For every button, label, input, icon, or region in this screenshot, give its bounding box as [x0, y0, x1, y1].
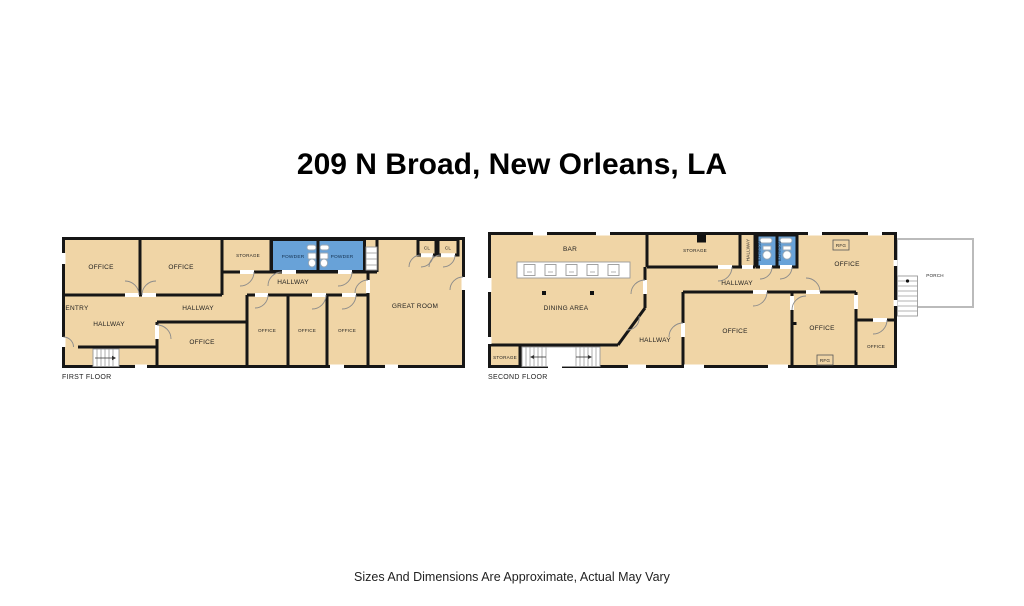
- bar-sink-icon: [524, 265, 535, 276]
- chimney-block: [697, 235, 706, 243]
- room-label-hallway: HALLWAY: [182, 305, 214, 312]
- toilet-icon: [320, 259, 327, 267]
- bar-counter: [517, 262, 630, 278]
- room-label-hallway: HALLWAY: [721, 280, 753, 287]
- room-label-office: OFFICE: [834, 261, 860, 268]
- room-label-office: OFFICE: [298, 328, 316, 333]
- room-label-entry: ENTRY: [65, 305, 89, 312]
- column: [794, 322, 797, 325]
- bar-sink-icon: [587, 265, 598, 276]
- column: [590, 291, 594, 295]
- room-label-office: OFFICE: [338, 328, 356, 333]
- sink-icon: [320, 245, 329, 250]
- second-floor-plan: PORCH: [488, 232, 988, 368]
- room-label-office: OFFICE: [88, 264, 114, 271]
- room-label-closet: CL: [424, 246, 431, 251]
- room-label-hallway: HALLWAY: [93, 321, 125, 328]
- room-label-hallway: HALLWAY: [639, 337, 671, 344]
- room-label-powder: POWDER: [331, 254, 354, 260]
- room-label-hallway: HALLWAY: [277, 279, 309, 286]
- room-label-storage: STORAGE: [683, 248, 707, 253]
- first-floor-caption: FIRST FLOOR: [62, 374, 111, 381]
- room-label-bathroom: BATHROOM: [778, 241, 782, 261]
- toilet-tank-icon: [763, 246, 771, 250]
- toilet-icon: [783, 251, 791, 259]
- room-label-office: OFFICE: [809, 325, 835, 332]
- stairs-start-dot: [906, 279, 909, 282]
- page-title: 209 N Broad, New Orleans, LA: [0, 148, 1024, 182]
- room-label-office: OFFICE: [168, 264, 194, 271]
- room-label-bathroom: BATHROOM: [758, 241, 762, 261]
- room-label-storage: STORAGE: [236, 253, 260, 258]
- room-label-office: OFFICE: [867, 344, 885, 349]
- disclaimer-text: Sizes And Dimensions Are Approximate, Ac…: [0, 570, 1024, 584]
- fridge-label: RFG: [820, 358, 831, 363]
- bar-sink-icon: [545, 265, 556, 276]
- toilet-icon: [308, 253, 316, 259]
- room-label-storage: STORAGE: [493, 355, 517, 360]
- room-label-great-room: GREAT ROOM: [392, 303, 438, 310]
- column: [542, 291, 546, 295]
- stairs-first-floor: [93, 349, 119, 367]
- room-label-closet: CL: [445, 246, 452, 251]
- first-floor-plan: OFFICE OFFICE STORAGE POWDER POWDER HALL…: [62, 237, 465, 368]
- toilet-icon: [320, 253, 328, 259]
- room-label-porch: PORCH: [926, 273, 944, 278]
- bar-sink-icon: [608, 265, 619, 276]
- stairs-second-floor: [522, 347, 600, 367]
- room-label-office: OFFICE: [258, 328, 276, 333]
- floorplan-page: 209 N Broad, New Orleans, LA: [0, 0, 1024, 606]
- floor2-outline: [490, 234, 896, 367]
- room-label-office: OFFICE: [722, 328, 748, 335]
- toilet-icon: [308, 259, 315, 267]
- toilet-tank-icon: [783, 246, 791, 250]
- fridge-bottom: RFG: [817, 355, 833, 365]
- room-label-dining: DINING AREA: [544, 305, 589, 312]
- bar-sink-icon: [566, 265, 577, 276]
- room-label-hallway: HALLWAY: [746, 239, 751, 262]
- shelf-closet: [366, 247, 377, 270]
- room-label-powder: POWDER: [282, 254, 305, 260]
- porch-stairs: [898, 276, 918, 316]
- fridge-label: RFG: [836, 243, 847, 248]
- sink-icon: [307, 245, 316, 250]
- room-label-office: OFFICE: [189, 339, 215, 346]
- second-floor-caption: SECOND FLOOR: [488, 374, 548, 381]
- toilet-icon: [763, 251, 771, 259]
- room-label-bar: BAR: [563, 246, 577, 253]
- fridge-top: RFG: [833, 240, 849, 250]
